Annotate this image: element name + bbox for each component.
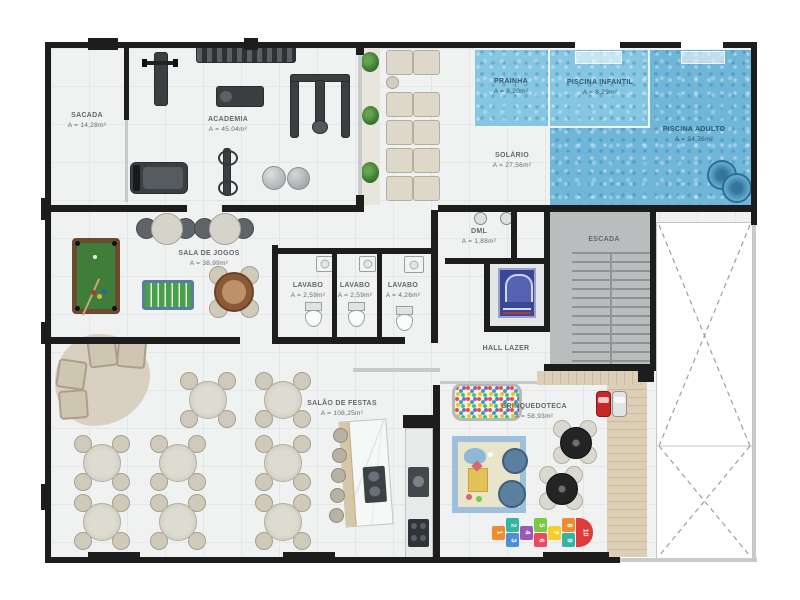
toilet	[396, 306, 413, 331]
playroom-threshold	[440, 381, 537, 384]
hopscotch-3: 3	[506, 533, 519, 547]
sun-lounger	[413, 120, 440, 145]
sun-lounger	[386, 176, 413, 201]
dining-table	[70, 431, 134, 495]
toilet	[305, 302, 322, 327]
wall-gameroom	[272, 245, 278, 342]
label-academia: ACADEMIAA = 45,04m²	[208, 115, 248, 135]
hopscotch-10: 10	[576, 518, 593, 547]
void-area	[656, 222, 753, 559]
label-lavabo-2: LAVABOA = 2,59m²	[338, 281, 373, 301]
wall-right	[751, 42, 757, 225]
wall-sacada	[124, 48, 129, 120]
hopscotch-7: 7	[548, 526, 561, 540]
bar-stool	[333, 428, 348, 443]
sink	[316, 256, 333, 272]
label-hall-lazer: HALL LAZER	[483, 344, 530, 354]
hopscotch-2: 2	[506, 518, 519, 532]
card-table	[211, 268, 257, 316]
deck-side-table	[386, 76, 399, 89]
sun-lounger	[386, 50, 413, 75]
bar-stool	[332, 448, 347, 463]
column	[41, 198, 51, 220]
wall-bath-top	[276, 248, 438, 254]
plant	[362, 106, 379, 125]
plant	[361, 162, 379, 183]
label-solario: SOLÁRIOA = 27,56m²	[493, 151, 532, 171]
wall-dml	[511, 210, 517, 263]
wall-bath-divider	[377, 254, 382, 340]
wall-top	[45, 42, 757, 48]
exercise-ball	[262, 166, 286, 190]
pool-step	[681, 51, 725, 64]
dining-table	[251, 490, 315, 554]
bar-stool	[331, 468, 346, 483]
column	[88, 38, 118, 50]
label-brinquedoteca: BRINQUEDOTECAA = 58,93m²	[501, 402, 567, 422]
glass-partition	[353, 368, 440, 372]
sacada-glass-door	[125, 120, 128, 202]
elevator-cab	[490, 264, 544, 326]
kids-pouf	[502, 448, 528, 474]
hopscotch-8: 8	[562, 518, 575, 532]
column	[41, 484, 51, 510]
bar-stool	[330, 488, 345, 503]
wall-party-top	[272, 337, 405, 344]
dining-table	[70, 490, 134, 554]
jacuzzi-seat	[722, 173, 752, 203]
wall-pool-bottom	[438, 205, 757, 212]
wall-gym-bottom	[45, 205, 187, 212]
column	[41, 322, 51, 344]
label-salao-de-festas: SALÃO DE FESTASA = 108,25m²	[307, 399, 377, 419]
sun-lounger	[386, 92, 413, 117]
pool-edge-opening	[575, 42, 620, 49]
wall-party-top	[45, 337, 240, 344]
sun-lounger	[413, 92, 440, 117]
label-escada: ESCADA	[588, 235, 619, 245]
wall-stub	[356, 42, 364, 55]
armchair	[58, 389, 89, 420]
elevator-icon	[498, 268, 536, 318]
kids-activity-table	[552, 419, 598, 465]
floor-plan: 1 2 3 4 5 6 7 8 9 10	[0, 0, 800, 600]
hopscotch-6: 6	[534, 533, 547, 547]
sun-lounger	[413, 176, 440, 201]
dining-table	[176, 368, 240, 432]
wall-stub	[403, 415, 433, 428]
foosball-table	[142, 280, 194, 310]
sun-lounger	[386, 120, 413, 145]
dining-table	[251, 431, 315, 495]
toy-car-white	[612, 391, 627, 417]
kids-pouf	[498, 480, 526, 508]
bistro-table	[136, 212, 196, 246]
exercise-ball	[287, 167, 310, 190]
sun-lounger	[386, 148, 413, 173]
toy-car-red	[596, 391, 611, 417]
wall-elevator	[484, 258, 490, 332]
label-sala-de-jogos: SALA DE JOGOSA = 38,99m²	[178, 249, 239, 269]
wall-right-thin	[753, 225, 756, 560]
sink	[404, 256, 424, 273]
treadmill	[130, 162, 188, 194]
spin-bike	[216, 148, 236, 194]
wall-kitchen	[433, 385, 440, 557]
hopscotch-5: 5	[534, 518, 547, 532]
sun-lounger	[413, 50, 440, 75]
wall-elevator	[544, 258, 550, 332]
dining-table	[146, 431, 210, 495]
label-lavabo-1: LAVABOA = 2,59m²	[291, 281, 326, 301]
label-piscina-infantil: PISCINA INFANTILA = 8,29m²	[567, 78, 633, 98]
column	[244, 38, 258, 50]
wall-elevator	[484, 258, 550, 264]
shower-head	[474, 212, 487, 225]
toilet	[348, 302, 365, 327]
pool-table	[72, 238, 120, 314]
pool-step	[575, 51, 622, 64]
wall-elevator	[484, 326, 550, 332]
bench-press	[142, 52, 178, 104]
wood-deck	[537, 371, 647, 385]
wall-stairs	[650, 210, 656, 371]
column	[88, 552, 140, 563]
gym-glass-wall	[358, 55, 362, 195]
stair-rail	[610, 252, 612, 366]
dining-table	[251, 368, 315, 432]
sun-lounger	[413, 148, 440, 173]
label-lavabo-3: LAVABOA = 4,26m²	[386, 281, 421, 301]
kitchen-counter	[405, 428, 433, 559]
dining-table	[146, 490, 210, 554]
weight-bench	[216, 86, 264, 107]
column	[543, 552, 609, 563]
pool-edge-opening	[681, 42, 723, 49]
column	[283, 552, 335, 563]
label-dml: DMLA = 1,88m²	[462, 227, 497, 247]
label-prainha: PRAINHAA = 8,20m²	[494, 77, 529, 97]
label-piscina-adulto: PISCINA ADULTOA = 34,76m²	[663, 125, 726, 145]
hopscotch-9: 9	[562, 533, 575, 547]
bar-stool	[329, 508, 344, 523]
wall-stub	[638, 368, 654, 382]
sink	[359, 256, 376, 272]
wall-bath-divider	[332, 254, 337, 340]
wall-gym-bottom	[222, 205, 360, 212]
plant	[361, 52, 379, 72]
void-x-pattern	[657, 223, 752, 558]
armchair	[55, 358, 88, 391]
wall-bottom-thin	[620, 558, 757, 562]
kids-activity-table	[538, 465, 584, 511]
cable-cross-machine	[290, 74, 348, 136]
wall-stairs	[544, 210, 550, 262]
bistro-table	[194, 212, 254, 246]
hopscotch-1: 1	[492, 526, 505, 540]
label-sacada: SACADAA = 14,28m²	[68, 111, 107, 131]
wall-hall-left	[431, 210, 438, 343]
hopscotch: 1 2 3 4 5 6 7 8 9 10	[492, 518, 593, 547]
hopscotch-4: 4	[520, 526, 533, 540]
